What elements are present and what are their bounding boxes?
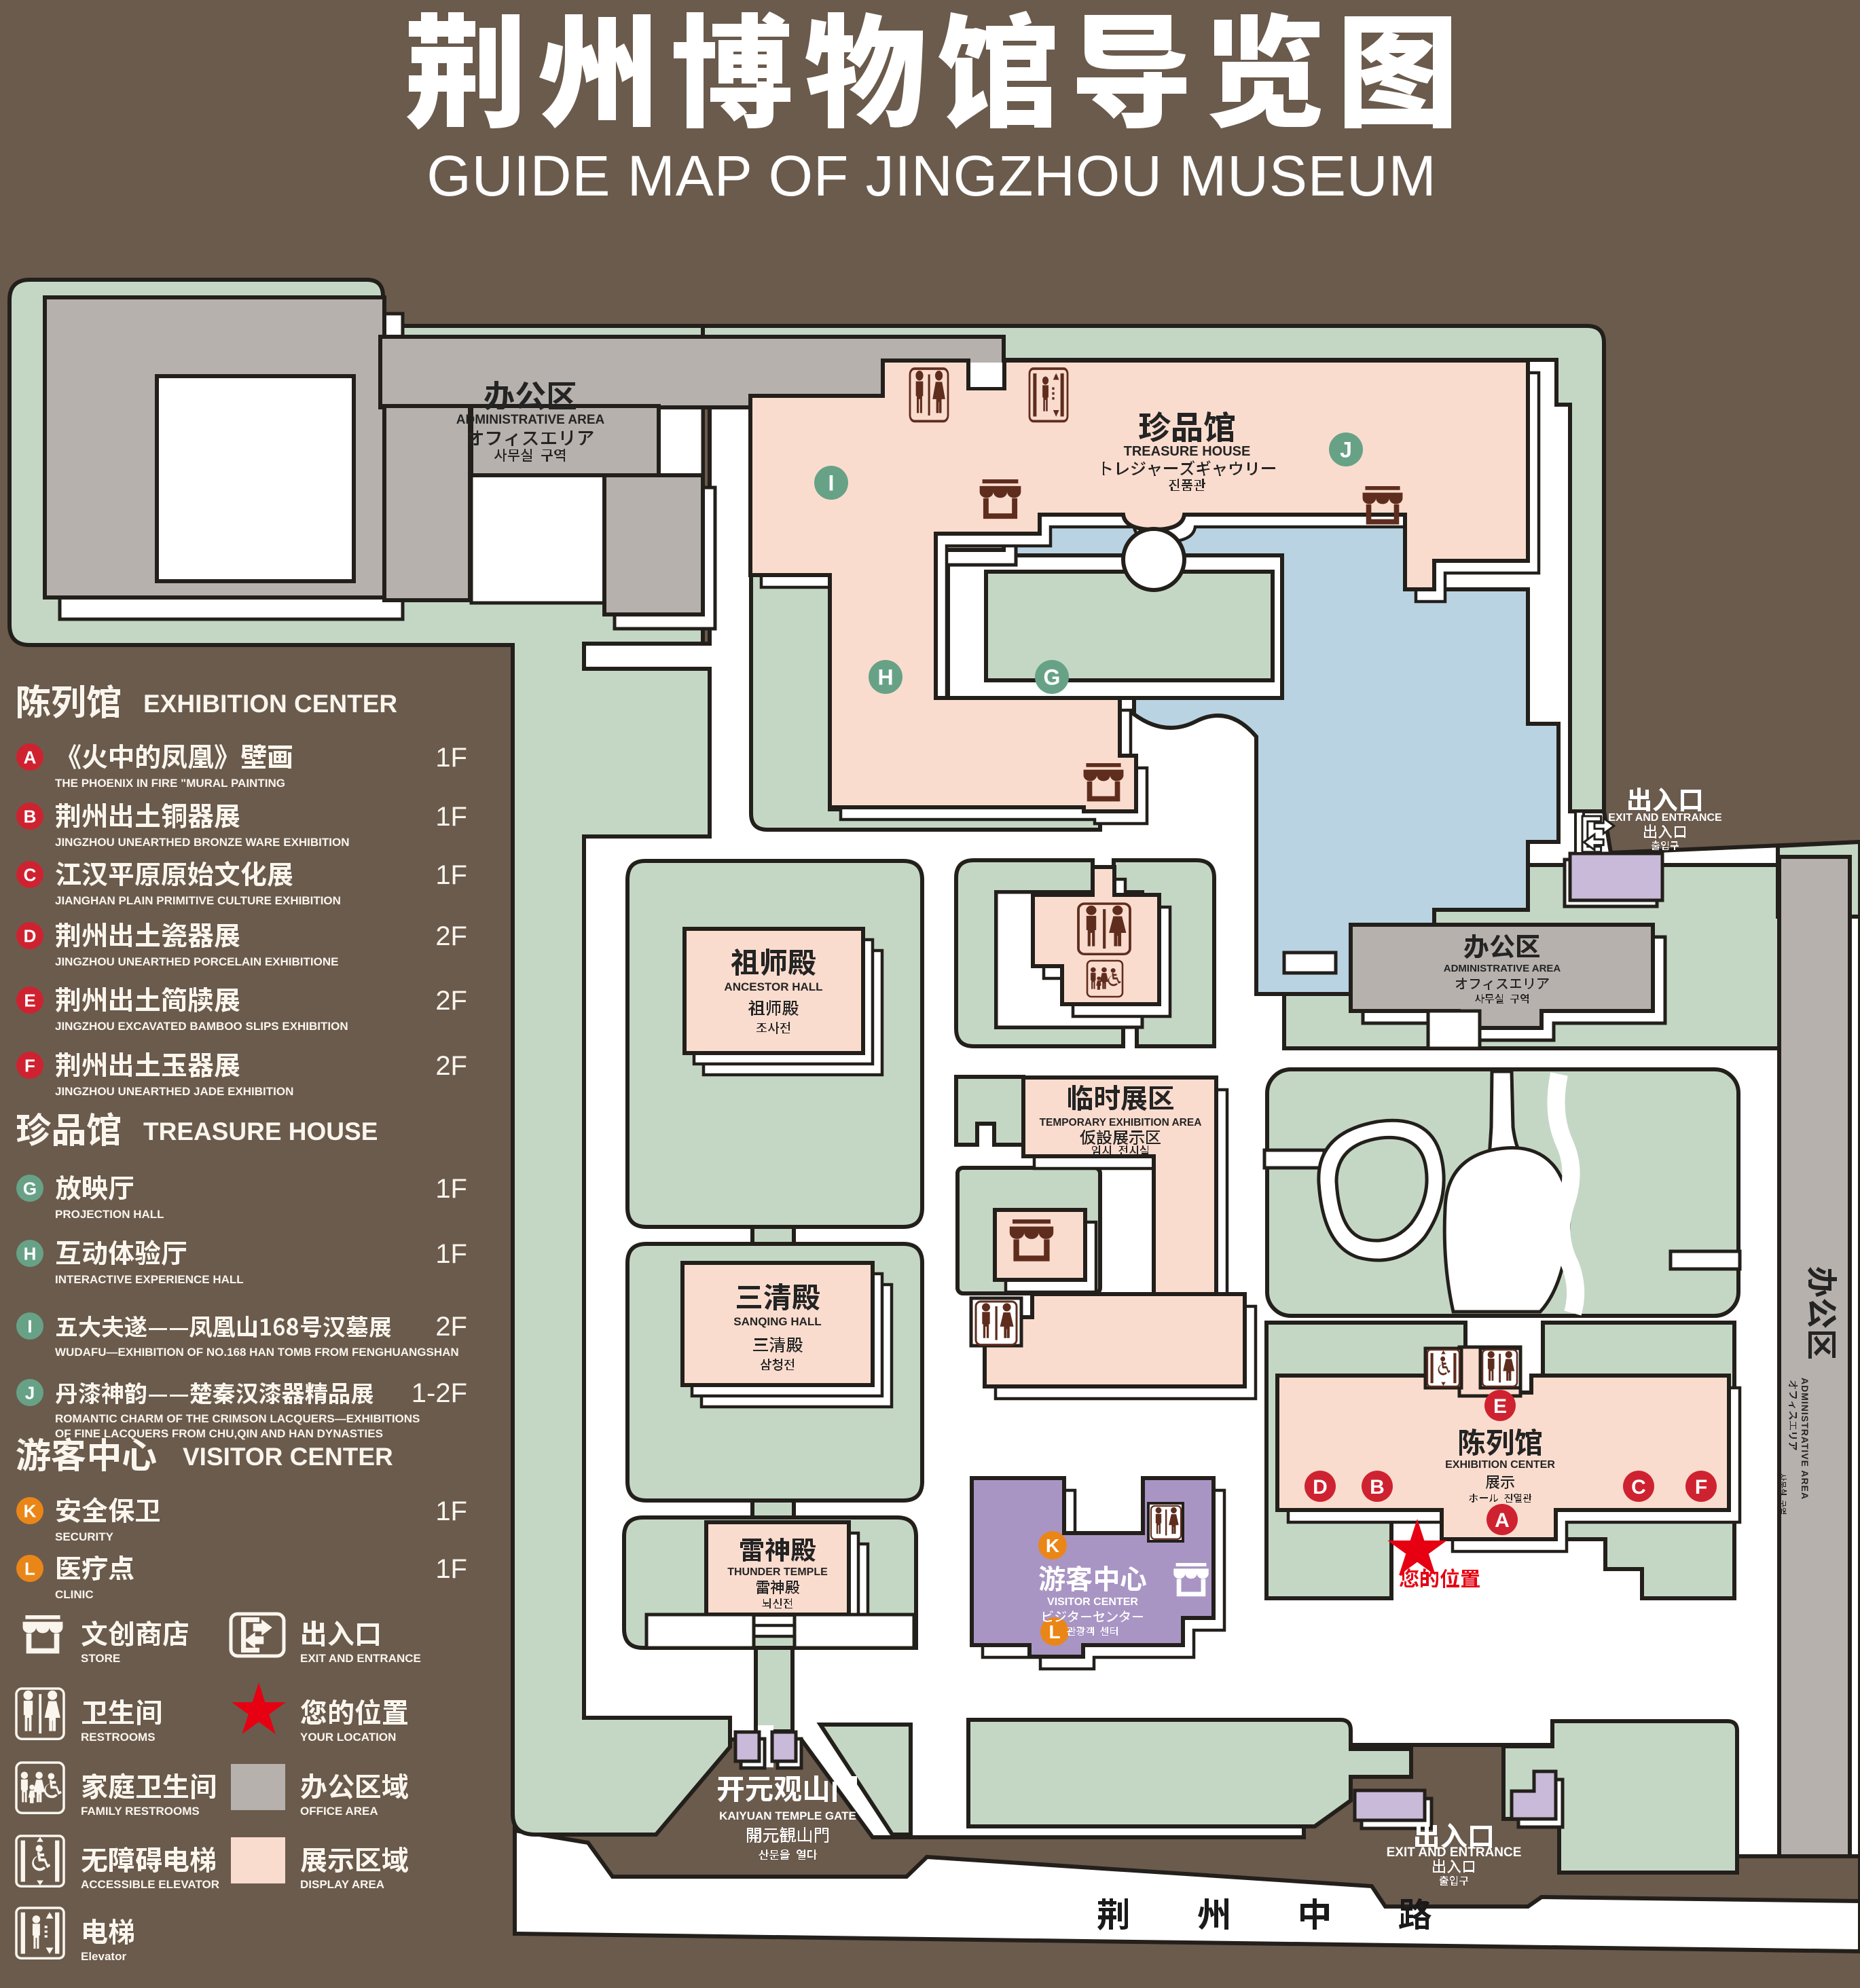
svg-text:EXHIBITION CENTER: EXHIBITION CENTER: [1445, 1459, 1555, 1471]
svg-text:K: K: [1046, 1535, 1059, 1556]
svg-text:Elevator: Elevator: [81, 1950, 126, 1963]
svg-text:CLINIC: CLINIC: [55, 1588, 94, 1601]
svg-text:WUDAFU—EXHIBITION OF NO.168 HA: WUDAFU—EXHIBITION OF NO.168 HAN TOMB FRO…: [55, 1346, 459, 1359]
svg-text:ADMINISTRATIVE AREA: ADMINISTRATIVE AREA: [1800, 1378, 1810, 1500]
svg-text:1F: 1F: [435, 1174, 467, 1204]
svg-text:THUNDER TEMPLE: THUNDER TEMPLE: [727, 1566, 828, 1578]
svg-text:J: J: [1340, 438, 1352, 462]
svg-text:SANQING HALL: SANQING HALL: [733, 1315, 821, 1328]
svg-text:1F: 1F: [435, 1554, 467, 1584]
svg-text:H: H: [877, 665, 893, 690]
svg-text:2F: 2F: [435, 1051, 467, 1081]
svg-text:PROJECTION HALL: PROJECTION HALL: [55, 1208, 164, 1221]
svg-text:L: L: [1048, 1621, 1060, 1642]
svg-text:JINGZHOU UNEARTHED PORCELAIN E: JINGZHOU UNEARTHED PORCELAIN EXHIBITIONE: [55, 955, 338, 968]
svg-text:ADMINISTRATIVE AREA: ADMINISTRATIVE AREA: [1444, 963, 1561, 974]
svg-text:F: F: [24, 1055, 35, 1075]
svg-text:G: G: [23, 1178, 37, 1198]
svg-text:F: F: [1695, 1476, 1707, 1498]
svg-text:D: D: [1313, 1476, 1328, 1498]
svg-text:J: J: [25, 1382, 35, 1403]
svg-text:THE PHOENIX IN FIRE "MURAL PAI: THE PHOENIX IN FIRE "MURAL PAINTING: [55, 777, 285, 790]
svg-text:DISPLAY AREA: DISPLAY AREA: [300, 1878, 384, 1891]
svg-text:TREASURE HOUSE: TREASURE HOUSE: [143, 1118, 378, 1145]
svg-text:JINGZHOU UNEARTHED BRONZE WARE: JINGZHOU UNEARTHED BRONZE WARE EXHIBITIO…: [55, 836, 350, 849]
svg-text:ADMINISTRATIVE AREA: ADMINISTRATIVE AREA: [456, 413, 605, 427]
svg-text:I: I: [27, 1316, 32, 1336]
svg-text:2F: 2F: [435, 986, 467, 1016]
svg-text:A: A: [1495, 1509, 1510, 1532]
svg-text:C: C: [1631, 1476, 1646, 1498]
svg-text:YOUR LOCATION: YOUR LOCATION: [300, 1731, 396, 1744]
svg-text:1F: 1F: [435, 743, 467, 773]
svg-text:A: A: [24, 747, 37, 767]
svg-text:1F: 1F: [435, 1239, 467, 1269]
svg-text:STORE: STORE: [81, 1652, 120, 1665]
svg-text:VISITOR CENTER: VISITOR CENTER: [1047, 1596, 1138, 1608]
svg-text:I: I: [828, 471, 835, 496]
svg-text:EXIT AND ENTRANCE: EXIT AND ENTRANCE: [300, 1652, 421, 1665]
svg-text:OFFICE AREA: OFFICE AREA: [300, 1805, 378, 1818]
svg-text:TREASURE HOUSE: TREASURE HOUSE: [1124, 444, 1251, 459]
svg-text:1-2F: 1-2F: [412, 1378, 467, 1408]
svg-text:EXIT AND ENTRANCE: EXIT AND ENTRANCE: [1608, 812, 1722, 824]
svg-text:VISITOR CENTER: VISITOR CENTER: [183, 1443, 393, 1471]
svg-text:EXIT AND ENTRANCE: EXIT AND ENTRANCE: [1387, 1845, 1522, 1860]
svg-text:FAMILY RESTROOMS: FAMILY RESTROOMS: [81, 1805, 200, 1818]
svg-text:E: E: [24, 990, 35, 1010]
svg-text:RESTROOMS: RESTROOMS: [81, 1731, 156, 1744]
svg-text:1F: 1F: [435, 860, 467, 890]
svg-text:EXHIBITION CENTER: EXHIBITION CENTER: [143, 690, 397, 718]
svg-text:JINGZHOU UNEARTHED JADE EXHIBI: JINGZHOU UNEARTHED JADE EXHIBITION: [55, 1085, 293, 1098]
svg-text:JIANGHAN PLAIN PRIMITIVE CULTU: JIANGHAN PLAIN PRIMITIVE CULTURE EXHIBIT…: [55, 894, 341, 907]
svg-text:TEMPORARY EXHIBITION AREA: TEMPORARY EXHIBITION AREA: [1040, 1117, 1202, 1128]
svg-text:H: H: [24, 1243, 37, 1264]
svg-text:JINGZHOU EXCAVATED BAMBOO SLIP: JINGZHOU EXCAVATED BAMBOO SLIPS EXHIBITI…: [55, 1020, 348, 1033]
svg-text:D: D: [24, 925, 37, 946]
svg-text:2F: 2F: [435, 921, 467, 951]
svg-text:INTERACTIVE EXPERIENCE HALL: INTERACTIVE EXPERIENCE HALL: [55, 1273, 244, 1286]
svg-text:ACCESSIBLE ELEVATOR: ACCESSIBLE ELEVATOR: [81, 1878, 219, 1891]
svg-text:1F: 1F: [435, 802, 467, 832]
svg-text:C: C: [24, 864, 37, 885]
svg-text:L: L: [24, 1558, 35, 1579]
svg-text:K: K: [24, 1501, 37, 1521]
svg-text:1F: 1F: [435, 1496, 467, 1526]
svg-text:SECURITY: SECURITY: [55, 1530, 114, 1543]
svg-text:2F: 2F: [435, 1312, 467, 1342]
svg-text:B: B: [1370, 1476, 1385, 1498]
svg-text:ROMANTIC CHARM OF THE CRIMSON: ROMANTIC CHARM OF THE CRIMSON LACQUERS—E…: [55, 1412, 420, 1425]
svg-text:GUIDE MAP OF JINGZHOU MUSEUM: GUIDE MAP OF JINGZHOU MUSEUM: [426, 144, 1436, 208]
svg-text:G: G: [1044, 665, 1061, 690]
svg-text:KAIYUAN TEMPLE GATE: KAIYUAN TEMPLE GATE: [719, 1809, 856, 1822]
svg-text:ANCESTOR HALL: ANCESTOR HALL: [724, 980, 822, 993]
svg-text:B: B: [24, 806, 37, 826]
svg-text:E: E: [1493, 1395, 1507, 1418]
